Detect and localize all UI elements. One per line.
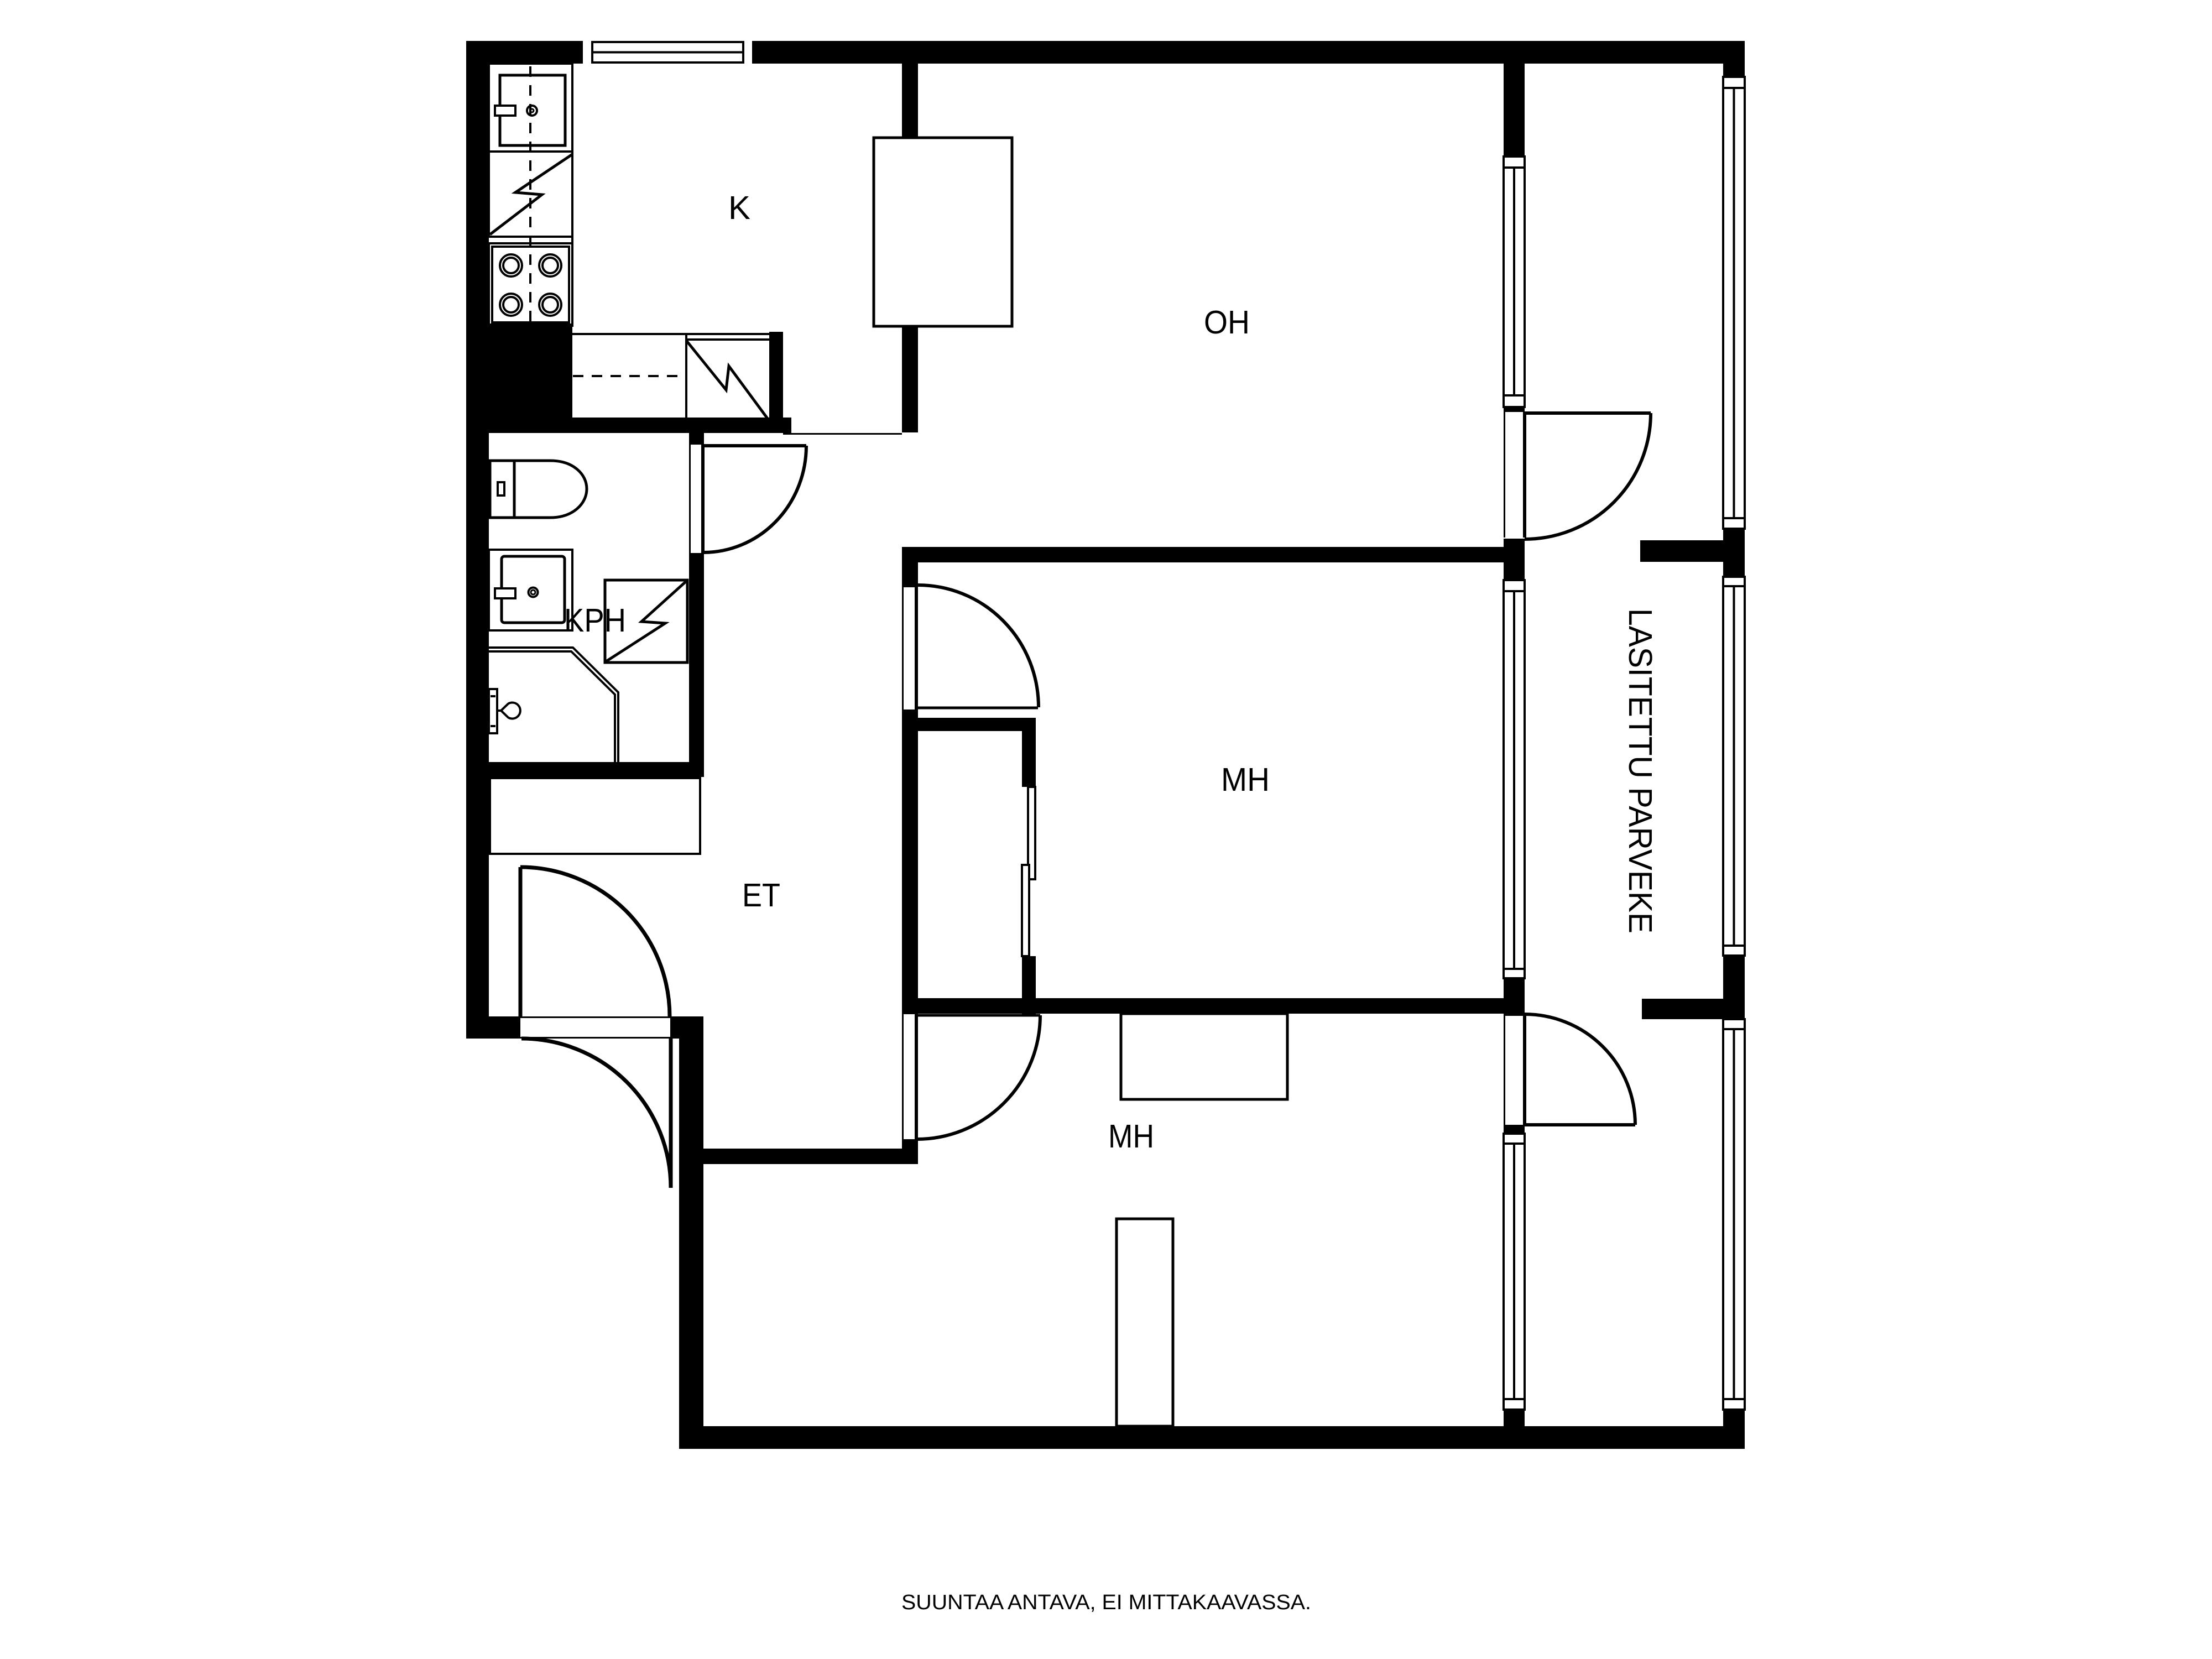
svg-text:KPH: KPH <box>564 602 626 639</box>
svg-text:ET: ET <box>742 877 780 914</box>
svg-text:LASITETTU PARVEKE: LASITETTU PARVEKE <box>1622 608 1658 933</box>
svg-text:OH: OH <box>1204 304 1250 341</box>
svg-text:MH: MH <box>1108 1118 1154 1155</box>
svg-text:SUUNTAA ANTAVA, EI MITTAKAAVAS: SUUNTAA ANTAVA, EI MITTAKAAVASSA. <box>901 1591 1311 1614</box>
svg-text:K: K <box>728 190 750 226</box>
svg-text:MH: MH <box>1221 761 1270 798</box>
